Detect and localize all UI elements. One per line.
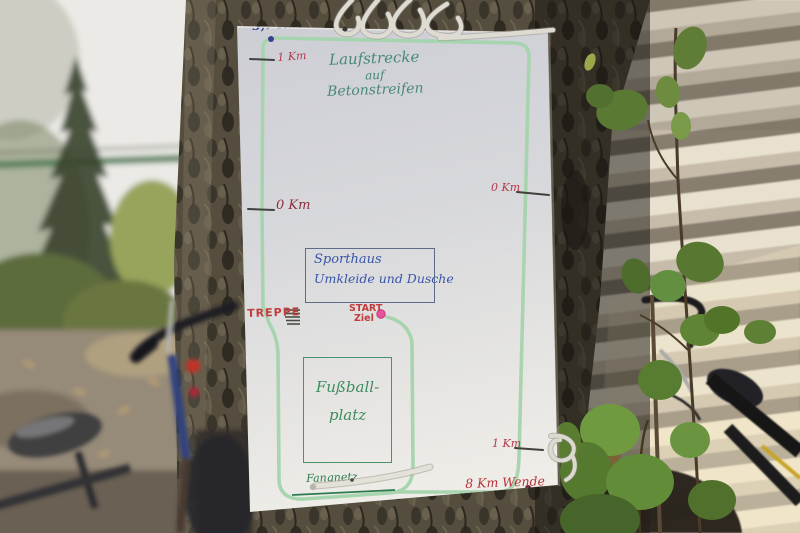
changing-room-label: Umkleide und Dusche (314, 273, 454, 286)
finish-label: Ziel (354, 314, 374, 324)
km-1-top-label: 1 Km (277, 50, 307, 63)
km-0-right-label: 0 Km (491, 182, 520, 193)
title-line1: Laufstrecke (322, 49, 426, 68)
km-0-left-label: 0 Km (276, 199, 310, 212)
net-label: Fangnetz (306, 471, 358, 484)
field-label-line2: platz (304, 408, 391, 423)
field-label-line1: Fußball- (304, 380, 391, 395)
stairs-label: TREPPE (247, 306, 300, 319)
course-map-sign: 3,7 Km Wende 1 Km Laufstrecke auf Betons… (230, 20, 565, 515)
photo-scene: 3,7 Km Wende 1 Km Laufstrecke auf Betons… (0, 0, 800, 533)
turnaround-dot-blue (268, 36, 274, 42)
red-reflector (186, 359, 200, 373)
sign-title: Laufstrecke auf Betonstreifen (322, 49, 428, 99)
title-line3: Betonstreifen (323, 81, 427, 99)
football-field-box: Fußball- platz (303, 357, 392, 463)
sporthaus-label: Sporthaus (314, 253, 382, 266)
km-1-bottom-label: 1 Km (492, 438, 521, 449)
sporthaus-box: Sporthaus Umkleide und Dusche (305, 248, 435, 303)
